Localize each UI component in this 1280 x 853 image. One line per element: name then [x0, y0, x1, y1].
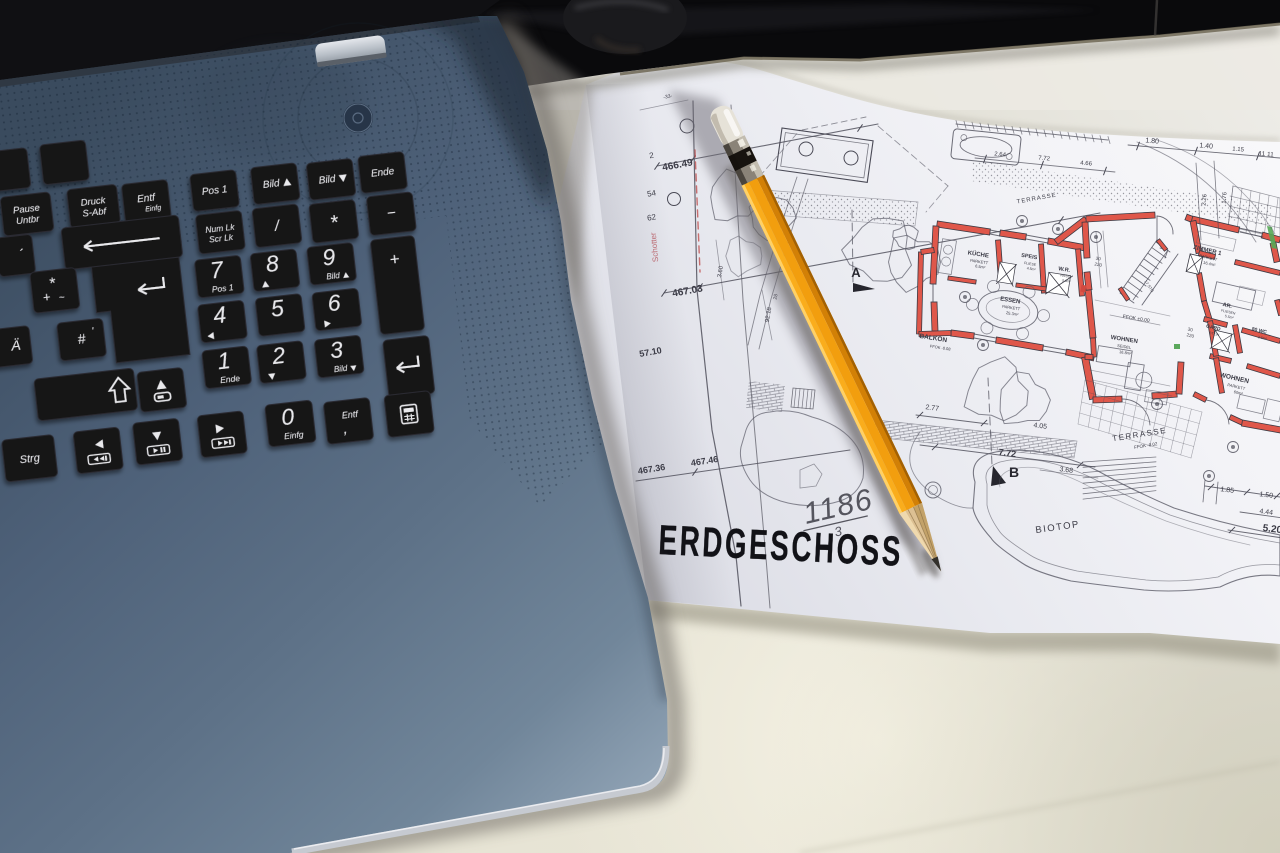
svg-text:Entf: Entf [137, 192, 157, 205]
svg-text:Bild: Bild [326, 271, 341, 282]
svg-text:Bild: Bild [262, 178, 280, 191]
svg-text:1.40: 1.40 [1199, 142, 1213, 150]
svg-text:Bild: Bild [318, 174, 336, 187]
svg-text:7.72: 7.72 [998, 447, 1017, 459]
svg-text:2.26: 2.26 [1202, 193, 1209, 206]
svg-text:1.80: 1.80 [1145, 137, 1159, 145]
svg-text:11 11: 11 11 [1258, 150, 1274, 158]
svg-text:Entf: Entf [341, 409, 360, 421]
svg-text:7.72: 7.72 [1038, 156, 1051, 163]
svg-text:1.15: 1.15 [1232, 147, 1245, 154]
svg-text:Bild: Bild [333, 364, 348, 375]
svg-text:Strg: Strg [19, 452, 41, 466]
svg-text:Ä: Ä [9, 337, 21, 354]
svg-text:4.66: 4.66 [1080, 161, 1093, 168]
svg-text:B: B [1009, 464, 1019, 480]
